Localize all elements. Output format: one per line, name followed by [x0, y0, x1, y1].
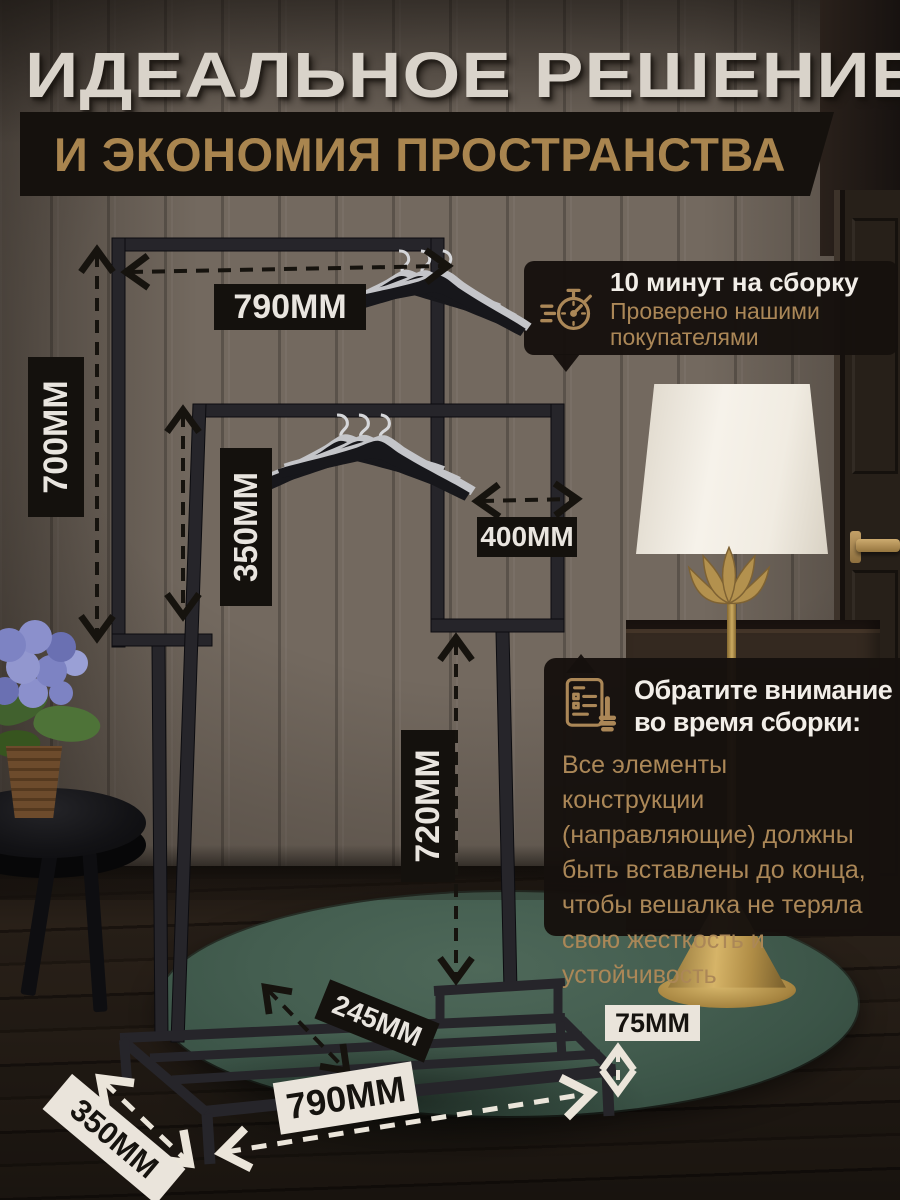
product-infographic: ИДЕАЛЬНОЕ РЕШЕНИЕ И ЭКОНОМИЯ ПРОСТРАНСТВ… — [0, 0, 900, 1200]
dimension-label-rail-height: 350MM — [220, 448, 272, 606]
note-body-line: (направляющие) должны — [562, 818, 900, 853]
note-body-line: конструкции — [562, 783, 900, 818]
hanger-group-middle — [242, 403, 483, 502]
note-card: Обратите внимание во время сборки: Все э… — [544, 658, 900, 936]
arrow-inner-width — [481, 499, 573, 501]
note-title-line: Обратите внимание — [634, 674, 892, 706]
dimension-label-base-height: 75MM — [605, 1005, 700, 1041]
note-body-line: свою жесткость и — [562, 923, 900, 958]
dimension-label-top-width: 790MM — [214, 284, 366, 330]
note-body-line: Все элементы — [562, 748, 900, 783]
note-body-line: быть вставлены до конца, — [562, 853, 900, 888]
hanger-icon — [277, 403, 483, 502]
note-body-line: устойчивость — [562, 958, 900, 993]
rack-frame — [112, 238, 564, 1042]
checklist-hand-icon — [560, 675, 622, 737]
dimension-label-pole-height: 720MM — [401, 730, 455, 882]
clothing-rack-illustration — [0, 0, 900, 1200]
dimension-label-inner-width: 400MM — [477, 517, 577, 557]
arrow-top-width — [130, 266, 444, 272]
note-body-line: чтобы вешалка не теряла — [562, 888, 900, 923]
dimension-label-left-height: 700MM — [28, 357, 84, 517]
note-title-line: во время сборки: — [634, 706, 892, 738]
